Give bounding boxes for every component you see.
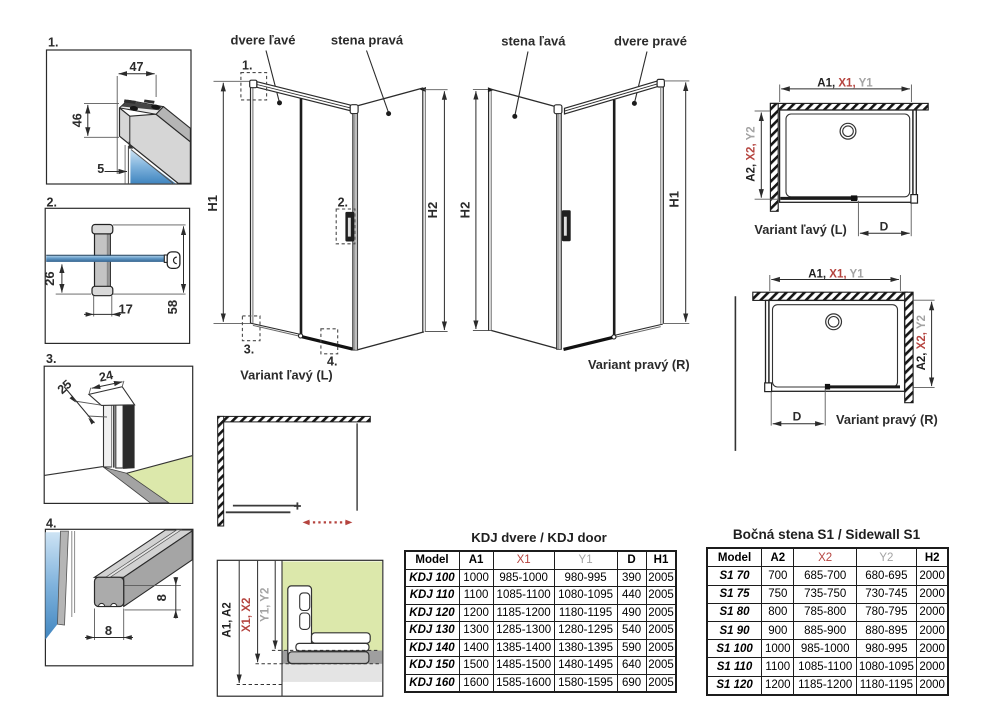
svg-text:5: 5: [97, 162, 104, 176]
svg-text:A2, X2, Y2: A2, X2, Y2: [916, 315, 928, 370]
svg-text:58: 58: [165, 300, 180, 314]
svg-text:4.: 4.: [46, 517, 56, 531]
svg-text:H2: H2: [425, 202, 440, 219]
svg-text:D: D: [880, 219, 889, 233]
svg-text:46: 46: [71, 113, 85, 127]
svg-text:A1, A2: A1, A2: [222, 602, 234, 637]
svg-text:A1, X1, Y1: A1, X1, Y1: [808, 269, 864, 281]
svg-text:2.: 2.: [47, 195, 57, 209]
svg-text:stena ľavá: stena ľavá: [501, 34, 566, 49]
svg-text:stena pravá: stena pravá: [331, 33, 404, 48]
svg-text:D: D: [793, 410, 802, 424]
svg-text:8: 8: [154, 594, 169, 601]
svg-text:Y1, Y2: Y1, Y2: [260, 588, 272, 622]
svg-text:Variant pravý (R): Variant pravý (R): [588, 357, 690, 372]
svg-text:H2: H2: [458, 202, 473, 219]
svg-text:A1, X1, Y1: A1, X1, Y1: [817, 78, 873, 90]
svg-text:H1: H1: [205, 195, 220, 212]
svg-text:H1: H1: [666, 191, 681, 208]
svg-text:1.: 1.: [48, 36, 58, 50]
svg-text:26: 26: [42, 271, 57, 285]
svg-text:A2, X2, Y2: A2, X2, Y2: [745, 126, 757, 181]
svg-text:3.: 3.: [244, 342, 254, 356]
svg-text:2.: 2.: [338, 195, 348, 209]
svg-text:X1, X2: X1, X2: [241, 598, 253, 633]
svg-text:17: 17: [118, 302, 132, 317]
svg-text:8: 8: [105, 623, 112, 638]
svg-text:1.: 1.: [242, 59, 252, 73]
svg-text:Variant ľavý (L): Variant ľavý (L): [754, 222, 846, 237]
svg-text:47: 47: [130, 60, 144, 74]
svg-text:dvere pravé: dvere pravé: [614, 34, 687, 49]
svg-text:24: 24: [98, 368, 115, 385]
svg-text:Variant ľavý (L): Variant ľavý (L): [240, 367, 332, 382]
svg-text:3.: 3.: [46, 352, 56, 366]
svg-text:Variant pravý (R): Variant pravý (R): [836, 412, 938, 427]
svg-text:dvere ľavé: dvere ľavé: [231, 33, 296, 48]
